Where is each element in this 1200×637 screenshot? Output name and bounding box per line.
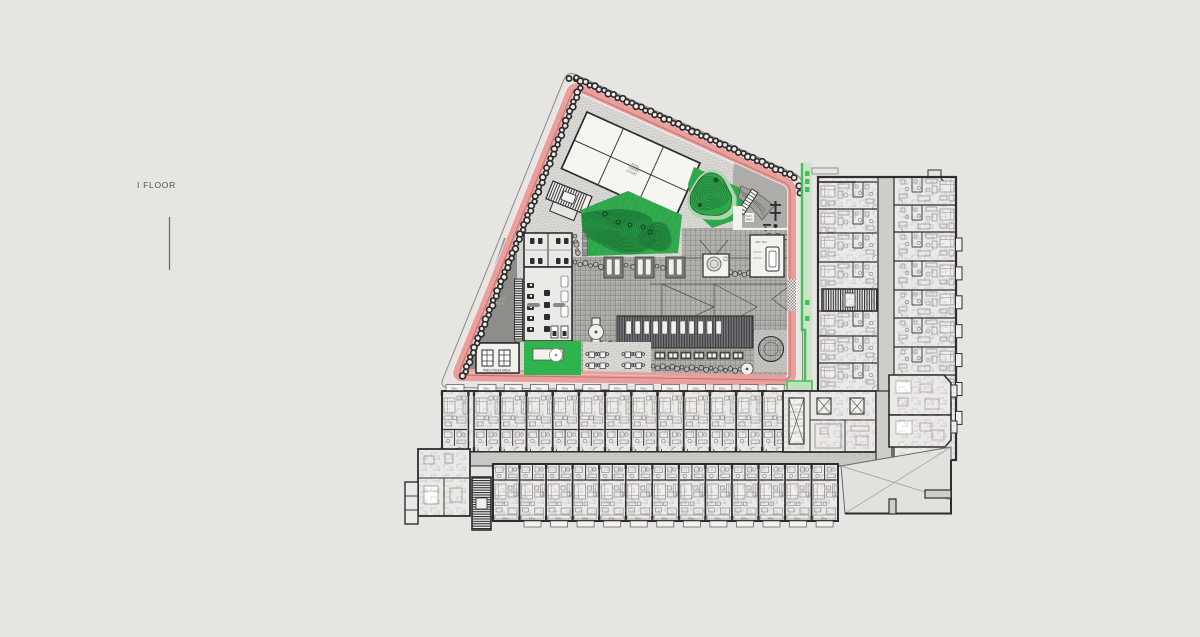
svg-text:300m: 300m bbox=[451, 386, 458, 390]
svg-text:I FLOOR: I FLOOR bbox=[137, 180, 176, 190]
svg-text:AREA: AREA bbox=[746, 218, 753, 222]
svg-text:300m: 300m bbox=[509, 386, 516, 390]
svg-text:300m: 300m bbox=[771, 386, 778, 390]
svg-text:300m: 300m bbox=[562, 386, 569, 390]
svg-text:300m: 300m bbox=[483, 386, 490, 390]
svg-text:300m: 300m bbox=[535, 386, 542, 390]
svg-text:300m: 300m bbox=[719, 386, 726, 390]
svg-text:ABC SPA: ABC SPA bbox=[755, 240, 767, 244]
svg-text:PING PONG AREA: PING PONG AREA bbox=[483, 369, 511, 373]
svg-text:300m: 300m bbox=[588, 386, 595, 390]
svg-text:300m: 300m bbox=[666, 386, 673, 390]
svg-text:300m: 300m bbox=[745, 386, 752, 390]
svg-text:AREA: AREA bbox=[495, 302, 505, 306]
svg-text:PLAY: PLAY bbox=[746, 214, 753, 218]
svg-text:300m: 300m bbox=[640, 386, 647, 390]
svg-text:300m: 300m bbox=[614, 386, 621, 390]
svg-text:300m: 300m bbox=[693, 386, 700, 390]
